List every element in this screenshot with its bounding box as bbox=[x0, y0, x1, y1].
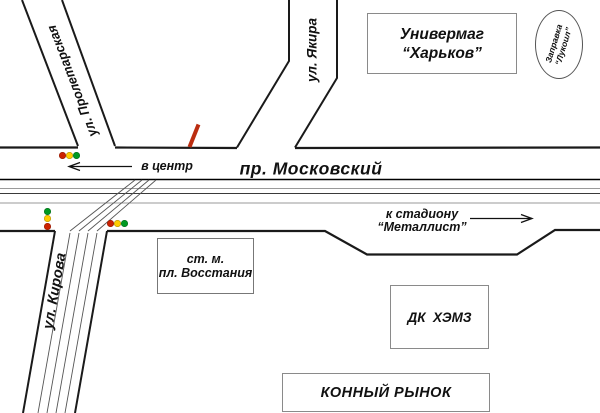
lukoil-label: Заправка “Лукоил” bbox=[544, 23, 574, 66]
traffic-light-yellow-dot bbox=[44, 215, 51, 222]
univermag-line1: Универмаг bbox=[400, 25, 484, 44]
city-map: ул. Пролетарская ул. Якира ул. Кирова пр… bbox=[0, 0, 600, 413]
traffic-light-yellow-dot bbox=[114, 220, 121, 227]
metro-line2: пл. Восстания bbox=[159, 266, 253, 280]
to-stadium-line1: к стадиону bbox=[386, 207, 458, 221]
traffic-light-yellow-dot bbox=[66, 152, 73, 159]
moskovsky-north-edge bbox=[0, 148, 600, 149]
street-label-moskovsky: пр. Московский bbox=[240, 159, 383, 180]
street-label-yakira: ул. Якира bbox=[305, 18, 320, 82]
traffic-light-red-dot bbox=[107, 220, 114, 227]
univermag-line2: “Харьков” bbox=[402, 44, 482, 63]
gas-station-lukoil: Заправка “Лукоил” bbox=[535, 10, 583, 79]
building-dk-khemz: ДК ХЭМЗ bbox=[390, 285, 489, 349]
building-konny-rynok: КОННЫЙ РЫНОК bbox=[282, 373, 490, 412]
yakira-left-edge bbox=[237, 0, 289, 148]
traffic-light-green-dot bbox=[121, 220, 128, 227]
traffic-light-red-dot bbox=[44, 223, 51, 230]
traffic-light-green-dot bbox=[44, 208, 51, 215]
metro-line1: ст. м. bbox=[187, 252, 225, 266]
market-label: КОННЫЙ РЫНОК bbox=[321, 385, 452, 401]
dk-label: ДК ХЭМЗ bbox=[408, 310, 472, 325]
kirova-right-edge bbox=[75, 231, 107, 413]
traffic-light-red-dot bbox=[59, 152, 66, 159]
building-univermag-kharkov: Универмаг “Харьков” bbox=[367, 13, 517, 74]
metro-station-vosstaniya: ст. м. пл. Восстания bbox=[157, 238, 254, 294]
to-stadium-arrow bbox=[470, 215, 532, 223]
to-stadium-line2: “Металлист” bbox=[377, 220, 466, 234]
direction-to-stadium: к стадиону “Металлист” bbox=[377, 208, 466, 234]
location-marker bbox=[190, 125, 199, 148]
direction-to-center: в центр bbox=[141, 159, 193, 173]
to-center-arrow bbox=[69, 163, 132, 171]
traffic-light-green-dot bbox=[73, 152, 80, 159]
